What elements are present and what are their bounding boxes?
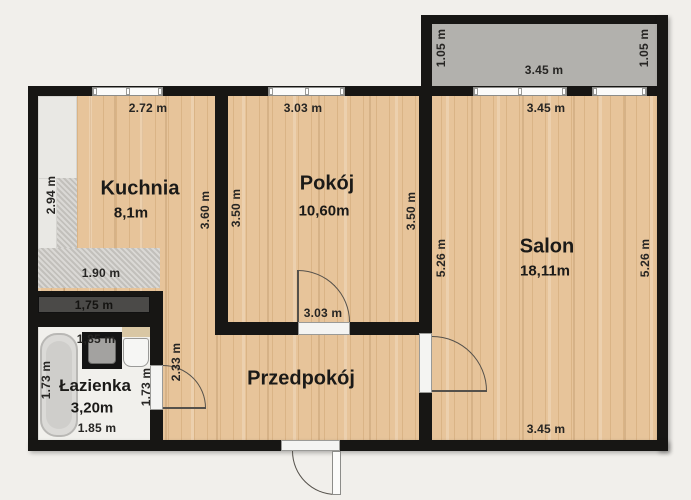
salon-door-opening	[419, 333, 432, 393]
dim-pokoj-door: 3.03 m	[304, 306, 343, 320]
dim-pokoj-right: 3.50 m	[404, 192, 418, 231]
room-area-pokoj: 10,60m	[299, 203, 350, 220]
window-pane-divider	[474, 88, 478, 95]
entry-door-arc	[292, 451, 336, 495]
kitchen-window	[92, 87, 163, 96]
window-pane-divider	[158, 88, 162, 95]
floor-plan: Kuchnia 8,1m Pokój 10,60m Salon 18,11m Ł…	[0, 0, 691, 500]
window-pane-divider	[518, 88, 522, 95]
dim-salon-bottom: 3.45 m	[527, 422, 566, 436]
dim-salon-top: 3.45 m	[527, 101, 566, 115]
window-pane-divider	[340, 88, 344, 95]
pokoj-door-opening	[298, 322, 350, 335]
window-pane-divider	[269, 88, 273, 95]
entry-door-leaf	[332, 451, 341, 495]
dim-bath-left: 1.73 m	[39, 361, 53, 400]
wall-balcony-top	[421, 15, 668, 24]
wall-right	[657, 15, 668, 451]
dim-pokoj-left: 3.50 m	[229, 189, 243, 228]
room-area-salon: 18,11m	[520, 263, 570, 280]
room-area-lazienka: 3,20m	[71, 400, 114, 417]
dim-wardrobe: 1,75 m	[75, 298, 114, 312]
dim-balcony-right: 1.05 m	[637, 29, 651, 68]
window-pane-divider	[562, 88, 566, 95]
room-label-salon: Salon	[520, 236, 574, 259]
room-label-kuchnia: Kuchnia	[101, 178, 180, 201]
window-pane-divider	[642, 88, 646, 95]
kitchen-counter-upper	[38, 96, 77, 179]
dim-kitchen-top: 2.72 m	[129, 101, 168, 115]
pokoj-window	[268, 87, 345, 96]
wall-top-main	[28, 86, 432, 96]
dim-kitchen-right: 3.60 m	[198, 191, 212, 230]
dim-balcony-left: 1.05 m	[434, 29, 448, 68]
room-label-lazienka: Łazienka	[59, 376, 131, 396]
kitchen-worktop-vertical	[57, 178, 77, 249]
dim-kitchen-left: 2.94 m	[44, 176, 58, 215]
bathroom-shelf	[122, 327, 150, 337]
dim-kitchen-counter: 1.90 m	[82, 266, 121, 280]
wall-bottom	[28, 440, 668, 451]
dim-salon-left: 5.26 m	[434, 239, 448, 278]
dim-bath-right: 1.73 m	[139, 368, 153, 407]
dim-hall-door: 2.33 m	[169, 343, 183, 382]
dim-pokoj-top: 3.03 m	[284, 101, 323, 115]
salon-window-1	[473, 87, 567, 96]
dim-salon-right: 5.26 m	[638, 239, 652, 278]
room-label-przedpokoj: Przedpokój	[247, 368, 355, 391]
wall-balcony-left	[421, 15, 432, 96]
wall-bathroom-top	[28, 317, 163, 327]
window-pane-divider	[593, 88, 597, 95]
wall-left	[28, 86, 38, 451]
window-pane-divider	[305, 88, 309, 95]
window-pane-divider	[93, 88, 97, 95]
wall-kitchen-pokoj	[215, 96, 228, 335]
dim-balcony-width: 3.45 m	[525, 63, 564, 77]
room-area-kuchnia: 8,1m	[114, 205, 148, 222]
dim-bath-bottom: 1.85 m	[78, 421, 117, 435]
window-pane-divider	[126, 88, 130, 95]
room-label-pokoj: Pokój	[300, 173, 354, 196]
toilet	[123, 338, 149, 367]
salon-window-2	[592, 87, 647, 96]
entry-door-opening	[281, 440, 340, 451]
dim-bath-top: 1,85 m	[77, 332, 116, 346]
